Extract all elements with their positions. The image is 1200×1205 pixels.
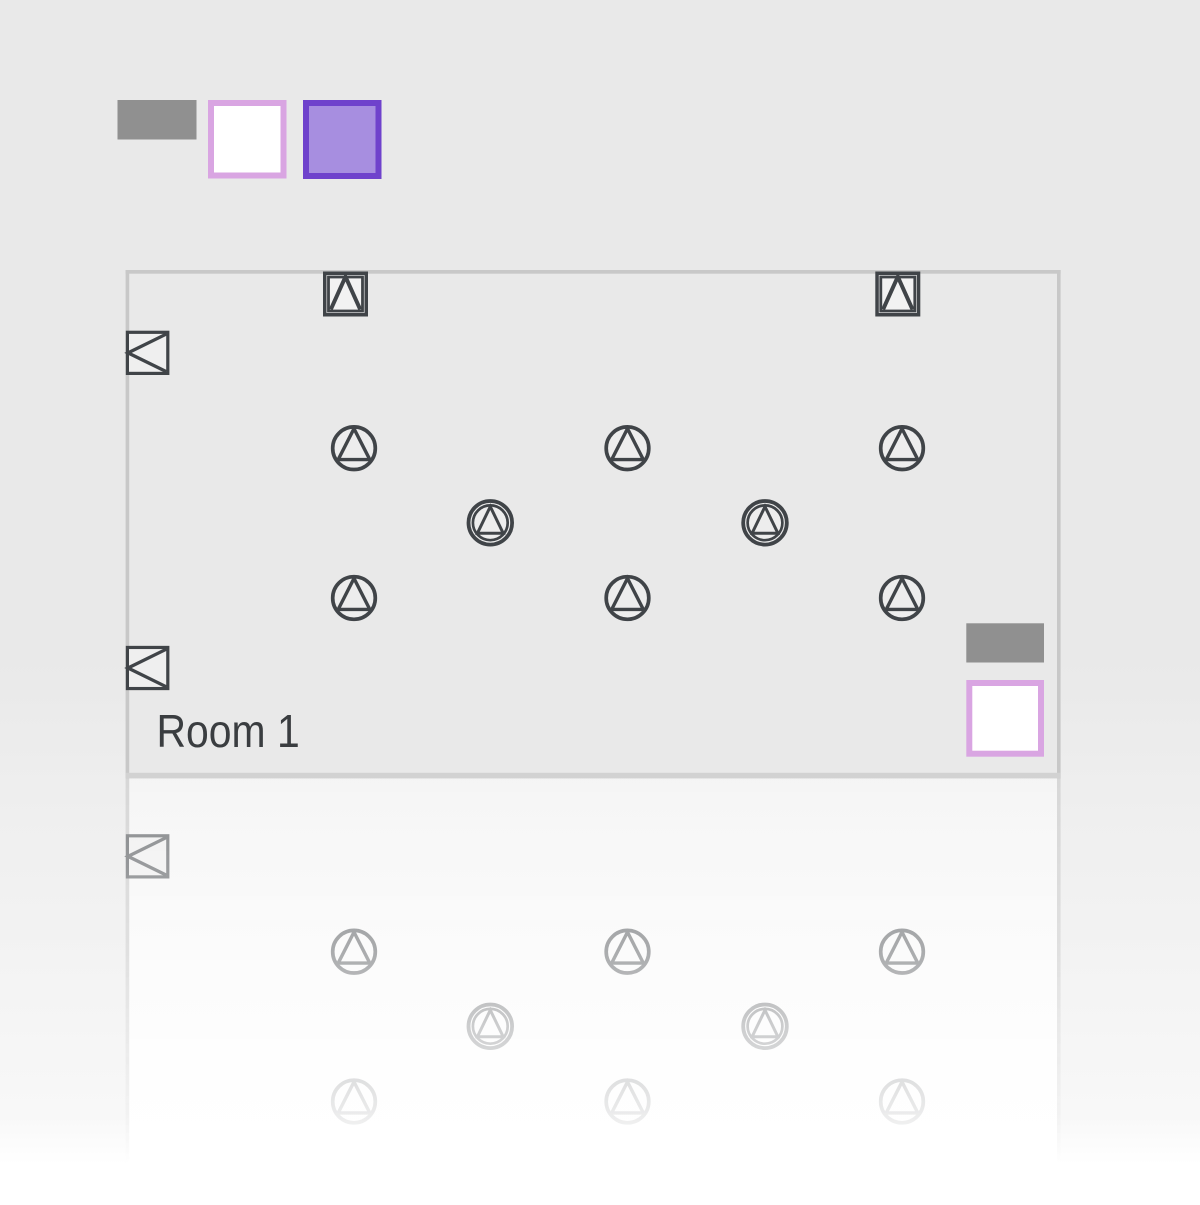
svg-text:Room 1: Room 1 (157, 706, 300, 758)
